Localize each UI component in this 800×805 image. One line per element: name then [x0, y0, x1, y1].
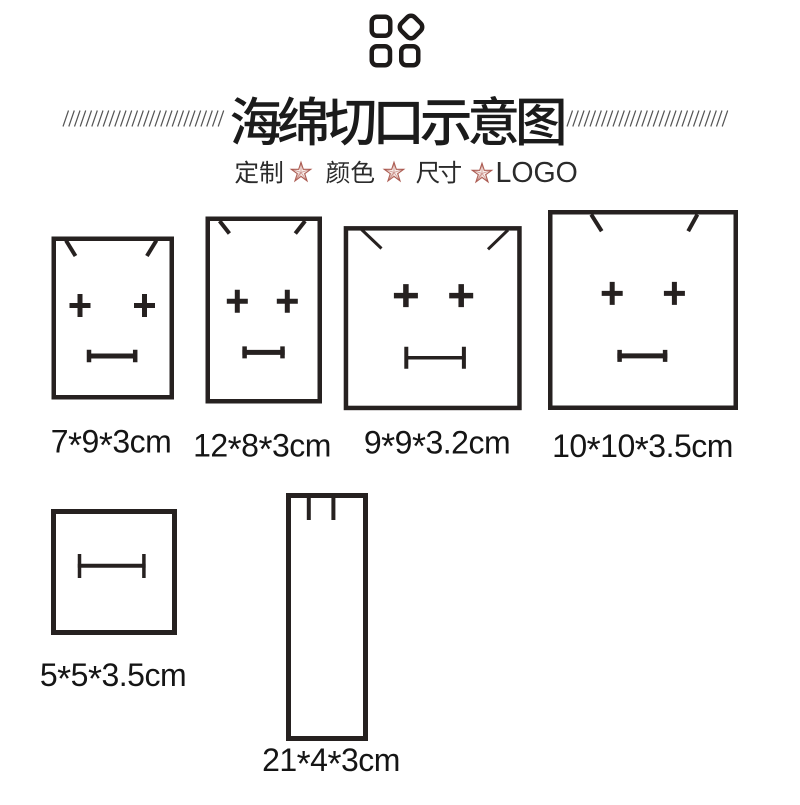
svg-text:LOGO: LOGO [496, 157, 578, 189]
svg-text:10*10*3.5cm: 10*10*3.5cm [552, 428, 733, 470]
svg-text:7*9*3cm: 7*9*3cm [51, 424, 172, 466]
svg-text:5*5*3.5cm: 5*5*3.5cm [40, 657, 186, 699]
svg-text:21*4*3cm: 21*4*3cm [262, 742, 400, 784]
svg-text:12*8*3cm: 12*8*3cm [193, 428, 331, 470]
svg-text:9*9*3.2cm: 9*9*3.2cm [364, 425, 510, 467]
